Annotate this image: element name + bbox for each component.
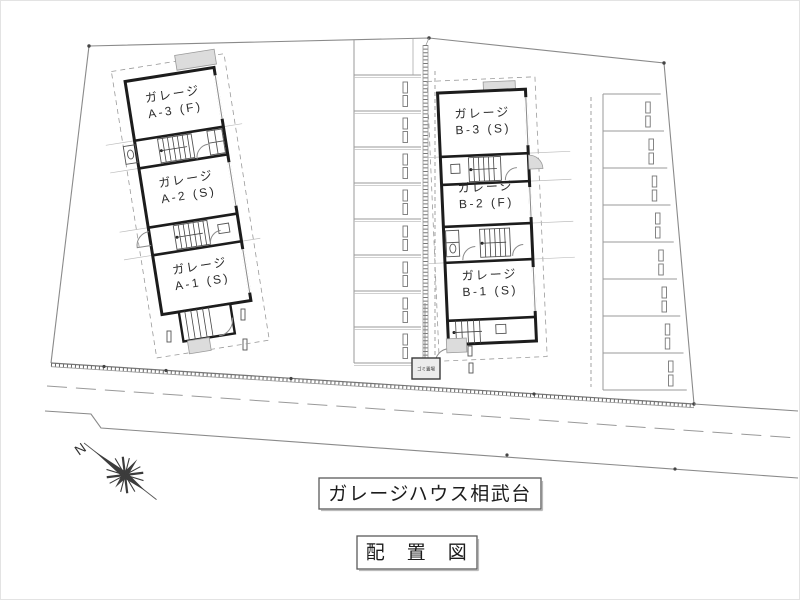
right-parking-stalls bbox=[603, 94, 687, 390]
wheel-stop bbox=[403, 240, 408, 251]
wheel-stop bbox=[652, 176, 657, 187]
wheel-stop bbox=[403, 168, 408, 179]
middle-parking-stalls bbox=[354, 40, 421, 365]
unit-b2-label-line2: B-2 (F) bbox=[459, 195, 514, 211]
wheel-stop bbox=[655, 213, 660, 224]
wheel-stop bbox=[649, 139, 654, 150]
wheel-stop bbox=[403, 276, 408, 287]
drawing-subtitle-text: 配 置 図 bbox=[366, 543, 469, 564]
wheel-stop bbox=[646, 116, 651, 127]
wheel-stop bbox=[403, 96, 408, 107]
site-plan-page: ガレージ A-3 (F) ガレージ A-2 (S) ガレージ A-1 (S) bbox=[0, 0, 800, 600]
wheel-stop bbox=[662, 287, 667, 298]
wheel-stop bbox=[403, 312, 408, 323]
wheel-stop bbox=[403, 226, 408, 237]
unit-b2-label-line1: ガレージ bbox=[458, 179, 514, 195]
wheel-stop bbox=[652, 190, 657, 201]
road-centerline bbox=[47, 386, 798, 438]
wheel-stop bbox=[403, 334, 408, 345]
wheel-stop bbox=[669, 361, 674, 372]
road-far-edge bbox=[45, 411, 798, 478]
wheel-stop bbox=[403, 204, 408, 215]
unit-b1-label-line2: B-1 (S) bbox=[462, 283, 518, 299]
wheel-stop bbox=[665, 338, 670, 349]
title-block: ガレージハウス相武台 bbox=[319, 478, 543, 511]
wheel-stop bbox=[659, 264, 664, 275]
wheel-stop bbox=[403, 298, 408, 309]
wheel-stop bbox=[655, 227, 660, 238]
building-b: ガレージ B-3 (S) ガレージ B-2 (F) ガレージ B-1 (S) bbox=[421, 75, 579, 363]
drawing-title-text: ガレージハウス相武台 bbox=[328, 483, 531, 505]
wheel-stop bbox=[662, 301, 667, 312]
wheel-stop bbox=[659, 250, 664, 261]
wheel-stop bbox=[403, 82, 408, 93]
wheel-stop bbox=[649, 153, 654, 164]
wheel-stop bbox=[403, 262, 408, 273]
site-plan-canvas: ガレージ A-3 (F) ガレージ A-2 (S) ガレージ A-1 (S) bbox=[1, 1, 800, 600]
building-b-side-porch bbox=[528, 155, 543, 170]
road bbox=[45, 386, 798, 478]
wheel-stop bbox=[403, 118, 408, 129]
wheel-stop bbox=[403, 348, 408, 359]
trash-enclosure-label: ゴミ置場 bbox=[417, 366, 435, 373]
north-arrow: N bbox=[71, 427, 168, 512]
wheel-stop bbox=[403, 132, 408, 143]
wheel-stop bbox=[646, 102, 651, 113]
unit-b1-label-line1: ガレージ bbox=[461, 267, 517, 283]
building-a: ガレージ A-3 (F) ガレージ A-2 (S) ガレージ A-1 (S) bbox=[94, 47, 277, 362]
unit-b3-label-line1: ガレージ bbox=[454, 105, 510, 121]
wheel-stop bbox=[403, 154, 408, 165]
north-label: N bbox=[71, 439, 88, 458]
wheel-stop bbox=[403, 190, 408, 201]
trash-enclosure: ゴミ置場 bbox=[412, 358, 440, 379]
building-b-porch bbox=[446, 338, 467, 353]
wheel-stop bbox=[665, 324, 670, 335]
wheel-stop bbox=[669, 375, 674, 386]
subtitle-block: 配 置 図 bbox=[357, 536, 479, 571]
unit-b3-label-line2: B-3 (S) bbox=[455, 121, 511, 137]
